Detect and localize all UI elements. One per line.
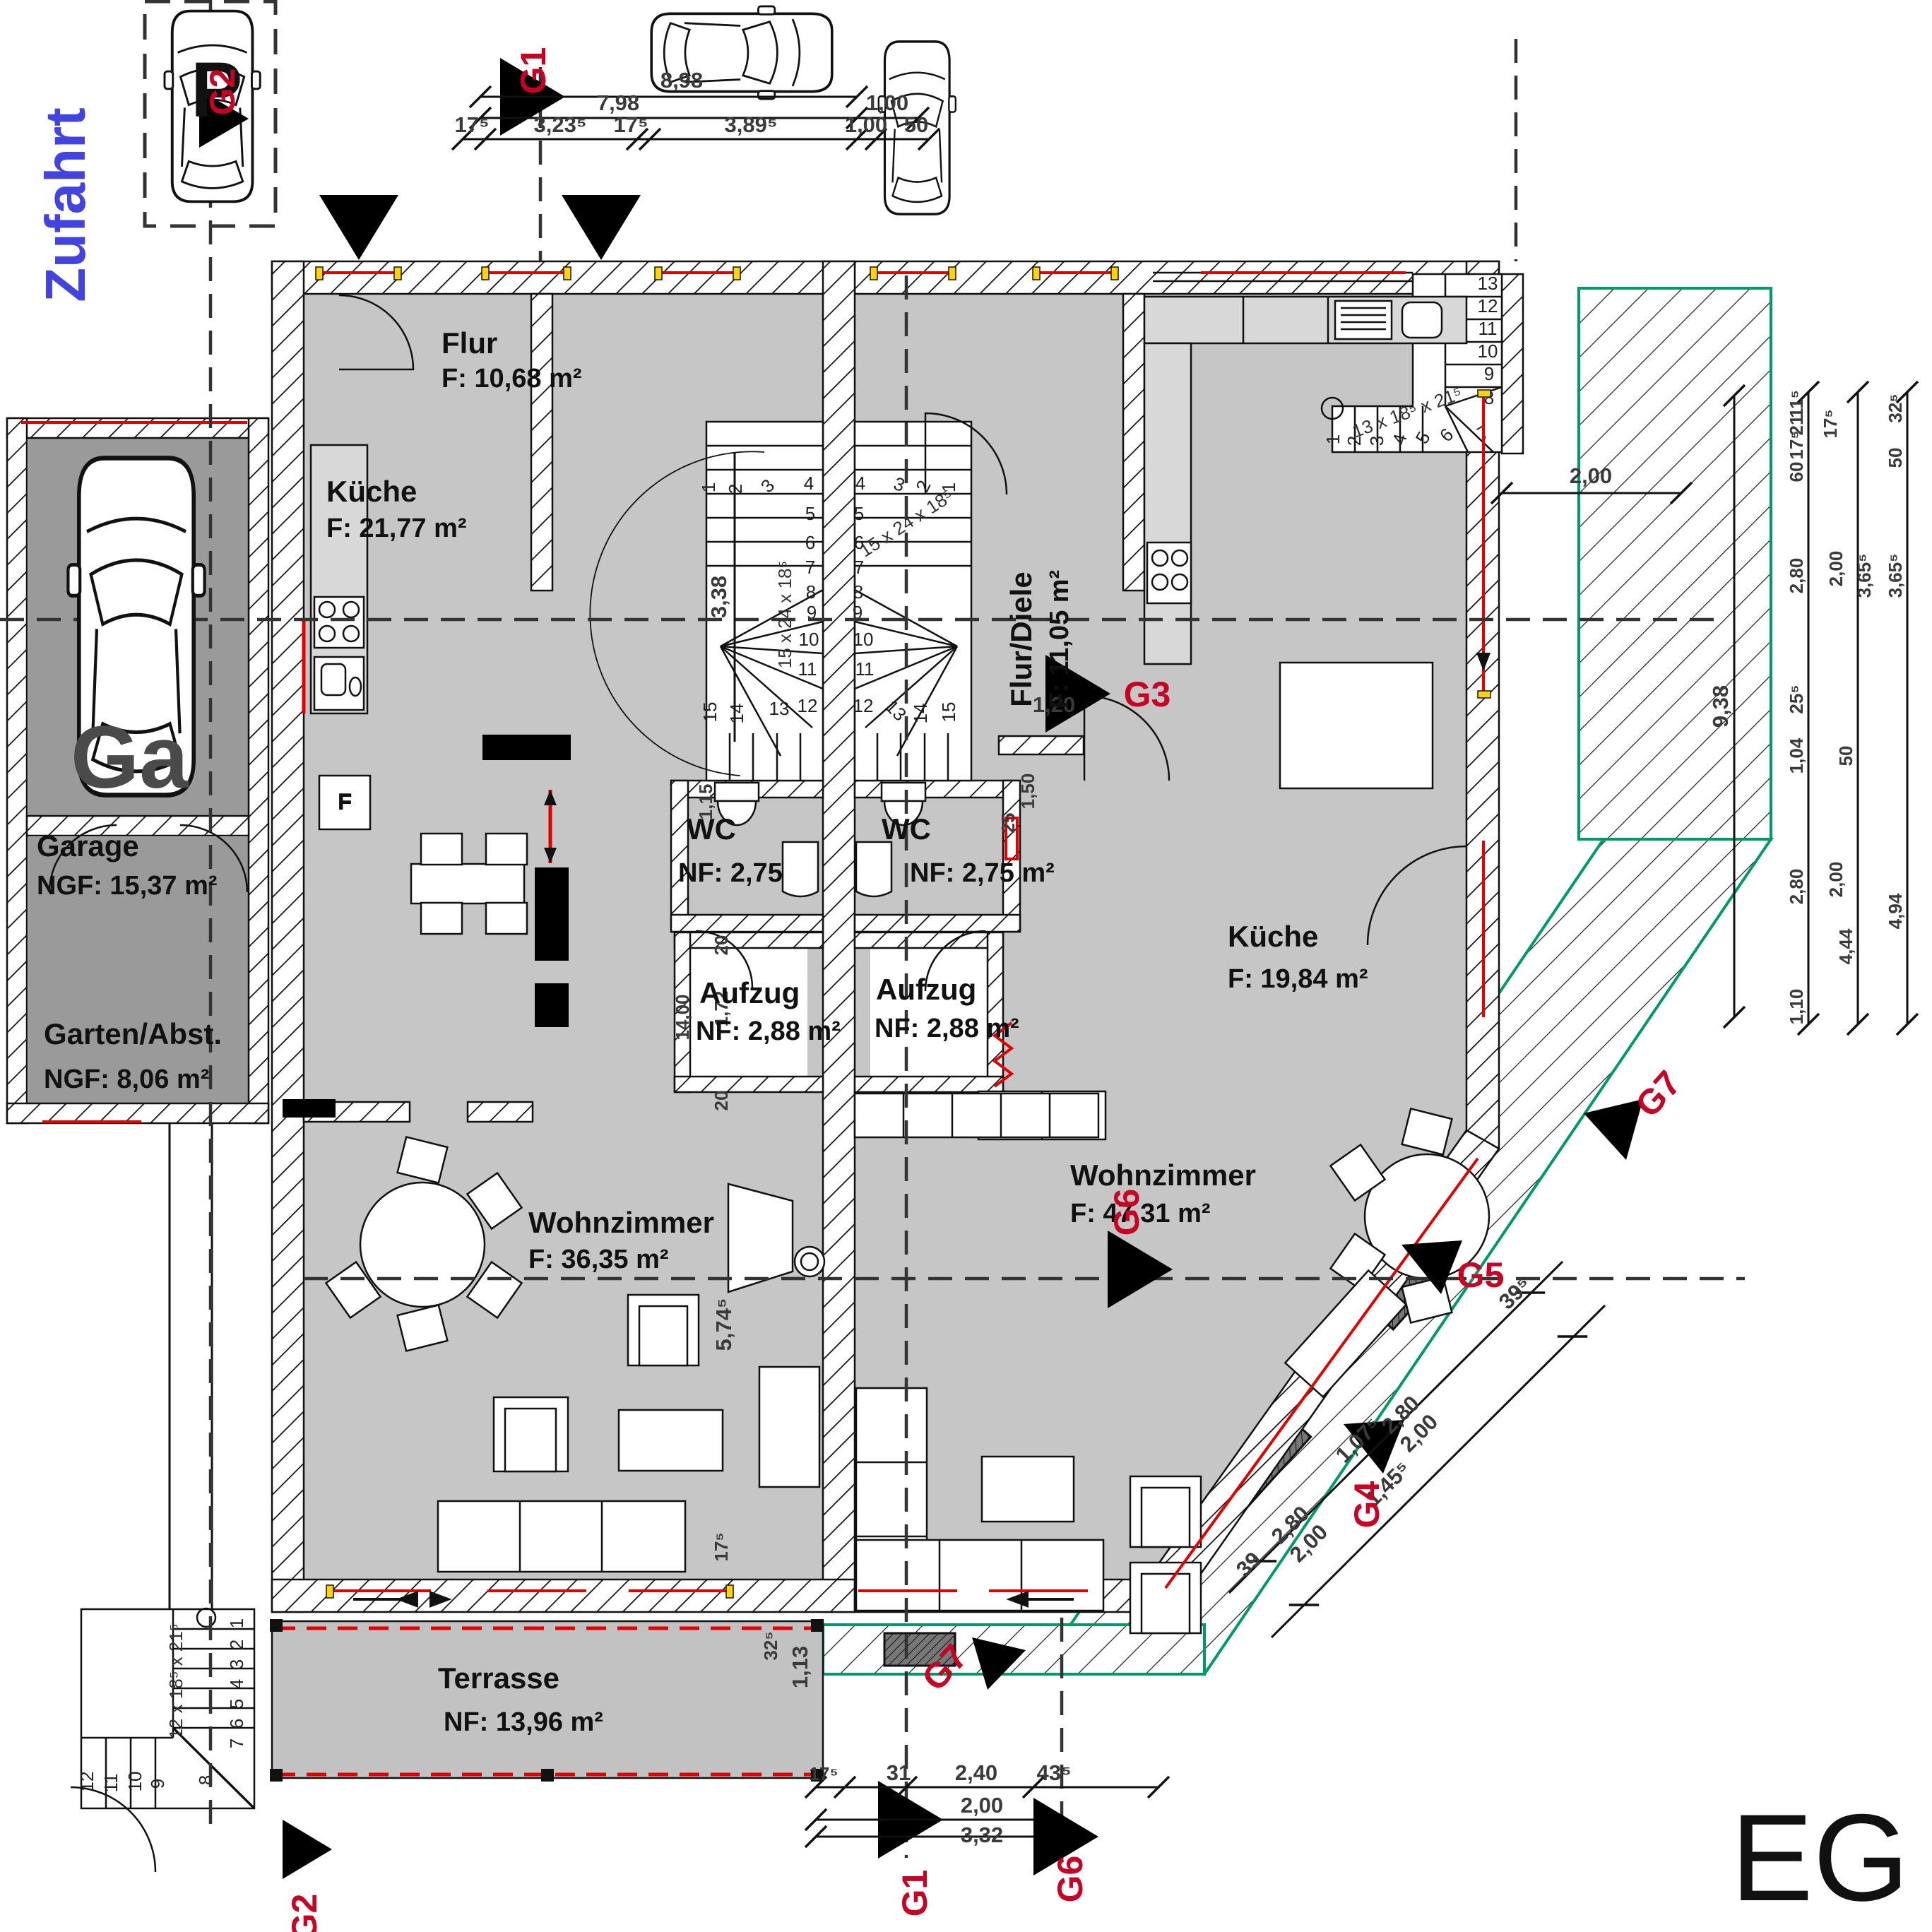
dining-table: [411, 864, 524, 903]
svg-text:12 x 18⁵ x 21⁵: 12 x 18⁵ x 21⁵: [165, 1623, 186, 1738]
room-label-wohnzimmer-left-area: F: 36,35 m²: [528, 1245, 669, 1274]
svg-text:2: 2: [226, 1640, 247, 1649]
room-label-flur-diele-area: F: 11,05 m²: [1045, 570, 1074, 709]
room-label-wc-left-name: WC: [687, 812, 736, 846]
room-label-flur-left-name: Flur: [441, 326, 497, 360]
svg-text:3,65⁵: 3,65⁵: [1885, 554, 1906, 598]
room-label-garage-area: NGF: 15,37 m²: [37, 871, 218, 901]
room-label-flur-diele-name: Flur/Diele: [1004, 571, 1038, 706]
svg-text:14,00: 14,00: [672, 994, 693, 1040]
svg-text:1: 1: [698, 482, 719, 492]
svg-text:20: 20: [711, 1091, 732, 1111]
room-label-kueche-right-area: F: 19,84 m²: [1228, 964, 1368, 994]
svg-text:50: 50: [1835, 746, 1856, 766]
sofa: [438, 1501, 685, 1572]
party-wall: [823, 261, 855, 1612]
svg-text:17⁵: 17⁵: [1786, 430, 1807, 459]
room-label-aufzug-right-name: Aufzug: [876, 973, 976, 1006]
room-label-garten-name: Garten/Abst.: [44, 1017, 222, 1050]
svg-text:11: 11: [1478, 318, 1498, 339]
svg-text:G4: G4: [1347, 1481, 1387, 1528]
svg-text:11: 11: [100, 1774, 122, 1793]
svg-text:7: 7: [854, 557, 864, 578]
svg-text:3,32: 3,32: [961, 1823, 1003, 1847]
svg-text:2,00: 2,00: [1570, 463, 1612, 488]
svg-text:17⁵: 17⁵: [809, 1763, 838, 1784]
svg-text:14: 14: [910, 704, 931, 724]
svg-text:1,50: 1,50: [1017, 774, 1038, 810]
svg-text:5,74⁵: 5,74⁵: [711, 1298, 736, 1351]
svg-text:4,94: 4,94: [1885, 893, 1906, 929]
elevator-right-shaft: [870, 948, 988, 1077]
svg-text:8: 8: [853, 581, 863, 603]
svg-text:G3: G3: [1124, 675, 1171, 714]
svg-text:17⁵: 17⁵: [613, 112, 648, 137]
svg-text:31: 31: [887, 1760, 911, 1785]
svg-text:12: 12: [1478, 295, 1498, 316]
svg-text:G2: G2: [285, 1894, 324, 1932]
svg-text:11: 11: [798, 658, 817, 680]
svg-text:2,40: 2,40: [955, 1760, 997, 1785]
svg-text:7,98: 7,98: [597, 90, 639, 115]
svg-text:1,04: 1,04: [1786, 737, 1807, 774]
svg-text:13: 13: [769, 698, 790, 719]
svg-text:4,44: 4,44: [1835, 928, 1856, 964]
svg-text:2,80: 2,80: [1786, 869, 1807, 905]
svg-text:10: 10: [1478, 340, 1498, 362]
room-label-aufzug-left-name: Aufzug: [699, 976, 800, 1009]
exterior-stair-wall: [1502, 274, 1523, 454]
svg-text:4: 4: [804, 473, 814, 494]
stair-interior-right: [855, 422, 971, 781]
svg-text:1,00: 1,00: [845, 112, 887, 137]
svg-text:17⁵: 17⁵: [454, 112, 489, 137]
svg-text:3: 3: [226, 1659, 247, 1669]
svg-text:60: 60: [1786, 462, 1807, 482]
room-label-kueche-right-name: Küche: [1228, 920, 1318, 953]
svg-text:9: 9: [147, 1779, 168, 1789]
svg-text:G5: G5: [1457, 1255, 1505, 1295]
svg-text:11⁵: 11⁵: [1786, 390, 1807, 418]
svg-text:17⁵: 17⁵: [1820, 409, 1841, 438]
svg-text:2,00: 2,00: [1825, 551, 1847, 587]
svg-text:8: 8: [806, 581, 816, 603]
room-label-wc-right-name: WC: [882, 812, 931, 846]
svg-text:10: 10: [799, 629, 819, 650]
svg-text:32⁵: 32⁵: [1885, 393, 1906, 422]
svg-text:G6: G6: [1050, 1856, 1090, 1903]
basin-right: [856, 842, 891, 896]
svg-text:2,00: 2,00: [1825, 862, 1847, 898]
room-label-garten-area: NGF: 8,06 m²: [44, 1065, 209, 1094]
basin-left: [783, 842, 818, 896]
svg-text:2,80: 2,80: [1786, 558, 1807, 594]
svg-text:1,10: 1,10: [1786, 989, 1807, 1025]
svg-text:3,23⁵: 3,23⁵: [534, 112, 587, 137]
svg-text:6: 6: [805, 532, 815, 553]
svg-text:14: 14: [726, 704, 747, 724]
svg-text:7: 7: [226, 1738, 247, 1748]
svg-text:G1: G1: [895, 1870, 935, 1917]
room-label-terrasse-area: NF: 13,96 m²: [444, 1707, 603, 1737]
coffee-table: [982, 1457, 1074, 1522]
svg-text:G6: G6: [1107, 1189, 1146, 1236]
svg-text:5: 5: [854, 503, 864, 524]
svg-text:10: 10: [124, 1772, 146, 1792]
svg-text:6: 6: [226, 1719, 247, 1729]
svg-text:5: 5: [226, 1699, 247, 1709]
room-label-kueche-left-area: F: 21,77 m²: [326, 514, 467, 543]
svg-text:11: 11: [855, 658, 875, 680]
svg-text:8,98: 8,98: [660, 68, 703, 93]
svg-text:25⁵: 25⁵: [1786, 685, 1807, 713]
room-label-wohnzimmer-left-name: Wohnzimmer: [528, 1206, 714, 1239]
svg-text:3,38: 3,38: [706, 576, 731, 618]
floor-plan-page: 1 2 3 4 5 6 7 8 9 10 11 12 13 14 15 15 x…: [0, 0, 1932, 1932]
svg-text:5: 5: [805, 503, 815, 524]
svg-text:8: 8: [195, 1775, 216, 1785]
terrace-floor: [272, 1621, 823, 1778]
svg-text:4: 4: [226, 1679, 247, 1689]
svg-text:9: 9: [1484, 363, 1494, 384]
svg-text:13: 13: [1478, 273, 1498, 294]
svg-text:9,38: 9,38: [1708, 685, 1733, 728]
zufahrt-label: Zufahrt: [34, 107, 97, 302]
sofa-element: [759, 1367, 819, 1487]
room-label-terrasse-name: Terrasse: [438, 1661, 559, 1695]
coffee-table: [619, 1410, 723, 1471]
svg-text:2,00: 2,00: [961, 1793, 1003, 1818]
svg-text:1,13: 1,13: [788, 1646, 812, 1688]
svg-text:10: 10: [853, 629, 874, 650]
kitchen-island: [1280, 663, 1433, 788]
garage-ga: Ga: [71, 709, 189, 807]
room-label-aufzug-left-area: NF: 2,88 m²: [696, 1017, 841, 1046]
side-corridor: [170, 1123, 212, 1609]
svg-text:17⁵: 17⁵: [711, 1532, 732, 1561]
room-label-wohnzimmer-right-name: Wohnzimmer: [1070, 1158, 1256, 1192]
svg-text:50: 50: [1885, 448, 1906, 468]
svg-text:7: 7: [805, 557, 815, 578]
svg-text:32⁵: 32⁵: [760, 1631, 781, 1660]
svg-text:43⁵: 43⁵: [1036, 1760, 1071, 1785]
stove-pipe: [795, 1247, 824, 1276]
svg-text:15: 15: [938, 702, 959, 723]
svg-text:12: 12: [798, 695, 818, 716]
round-table: [360, 1183, 485, 1307]
svg-text:50: 50: [904, 112, 928, 137]
room-label-aufzug-right-area: NF: 2,88 m²: [875, 1014, 1019, 1043]
sink-icon: [1335, 301, 1392, 339]
room-label-garage-name: Garage: [37, 829, 139, 863]
svg-text:25: 25: [997, 813, 1019, 834]
svg-text:3,89⁵: 3,89⁵: [725, 112, 778, 137]
svg-text:1: 1: [1322, 434, 1344, 444]
room-label-wc-right-area: NF: 2,75 m²: [910, 858, 1055, 888]
room-label-kueche-left-name: Küche: [326, 475, 417, 508]
fridge-letter: F: [338, 790, 351, 814]
wardrobe-row: [855, 1094, 1098, 1137]
floor-plan-drawing: 1 2 3 4 5 6 7 8 9 10 11 12 13 14 15 15 x…: [0, 0, 1932, 1932]
svg-text:1: 1: [226, 1618, 247, 1628]
room-label-flur-left-area: F: 10,68 m²: [441, 364, 582, 393]
room-label-wc-left-area: NF: 2,75: [678, 858, 783, 888]
svg-text:1,00: 1,00: [866, 90, 908, 115]
svg-text:4: 4: [855, 473, 865, 494]
svg-text:3,65⁵: 3,65⁵: [1854, 554, 1875, 598]
svg-text:15: 15: [699, 702, 721, 723]
svg-text:20: 20: [711, 935, 732, 956]
floor-label: EG: [1731, 1789, 1909, 1927]
svg-text:G2: G2: [203, 69, 242, 116]
svg-text:12: 12: [853, 695, 874, 716]
svg-text:15 x 24 x 18⁵: 15 x 24 x 18⁵: [774, 561, 795, 668]
svg-text:G1: G1: [514, 47, 553, 95]
